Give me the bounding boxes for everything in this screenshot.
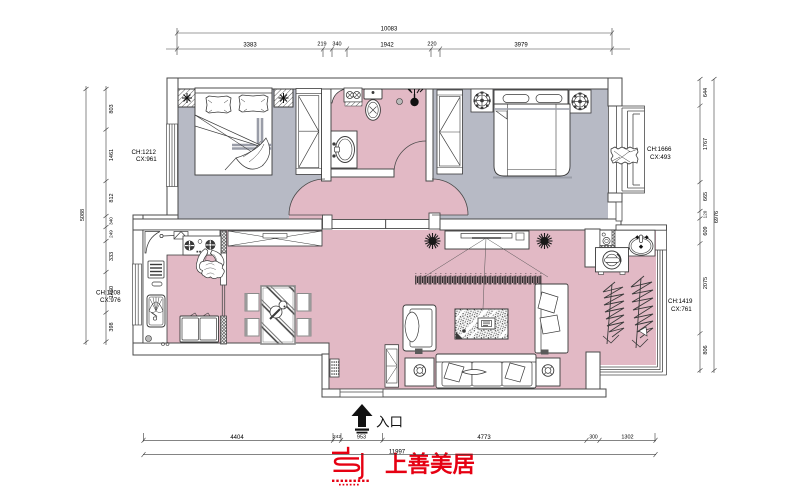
svg-text:953: 953 bbox=[357, 434, 366, 440]
svg-text:CX:493: CX:493 bbox=[650, 154, 671, 161]
svg-text:340: 340 bbox=[109, 217, 114, 225]
svg-text:803: 803 bbox=[109, 104, 115, 113]
svg-text:2075: 2075 bbox=[703, 277, 709, 289]
svg-text:CX:961: CX:961 bbox=[136, 156, 157, 163]
svg-text:3383: 3383 bbox=[243, 43, 257, 49]
svg-text:CH:1212: CH:1212 bbox=[132, 149, 157, 156]
svg-text:1460: 1460 bbox=[109, 286, 115, 298]
svg-text:1767: 1767 bbox=[703, 138, 709, 150]
svg-text:3979: 3979 bbox=[514, 43, 528, 49]
svg-text:11997: 11997 bbox=[389, 450, 406, 456]
svg-text:665: 665 bbox=[703, 192, 709, 201]
svg-text:242: 242 bbox=[333, 434, 341, 440]
svg-text:806: 806 bbox=[703, 345, 709, 354]
svg-text:219: 219 bbox=[317, 42, 326, 48]
svg-text:1942: 1942 bbox=[380, 43, 394, 49]
svg-text:333: 333 bbox=[109, 252, 115, 261]
svg-text:812: 812 bbox=[109, 193, 115, 202]
svg-text:398: 398 bbox=[109, 322, 115, 331]
svg-text:1302: 1302 bbox=[621, 434, 633, 440]
svg-text:CX:761: CX:761 bbox=[671, 306, 692, 313]
svg-text:300: 300 bbox=[589, 434, 598, 440]
svg-text:340: 340 bbox=[332, 42, 341, 48]
svg-text:120: 120 bbox=[703, 210, 708, 218]
svg-text:10083: 10083 bbox=[381, 27, 398, 33]
svg-text:CH:1419: CH:1419 bbox=[668, 298, 693, 305]
svg-text:4404: 4404 bbox=[230, 435, 244, 441]
svg-text:6976: 6976 bbox=[714, 211, 720, 223]
svg-text:1461: 1461 bbox=[109, 149, 115, 161]
svg-text:609: 609 bbox=[703, 226, 709, 235]
svg-text:644: 644 bbox=[703, 88, 709, 97]
svg-text:5088: 5088 bbox=[80, 209, 86, 221]
svg-text:249: 249 bbox=[109, 230, 114, 238]
svg-text:入口: 入口 bbox=[376, 415, 403, 430]
svg-text:CH:1666: CH:1666 bbox=[647, 146, 672, 153]
svg-text:4773: 4773 bbox=[477, 435, 491, 441]
svg-text:220: 220 bbox=[427, 42, 436, 48]
